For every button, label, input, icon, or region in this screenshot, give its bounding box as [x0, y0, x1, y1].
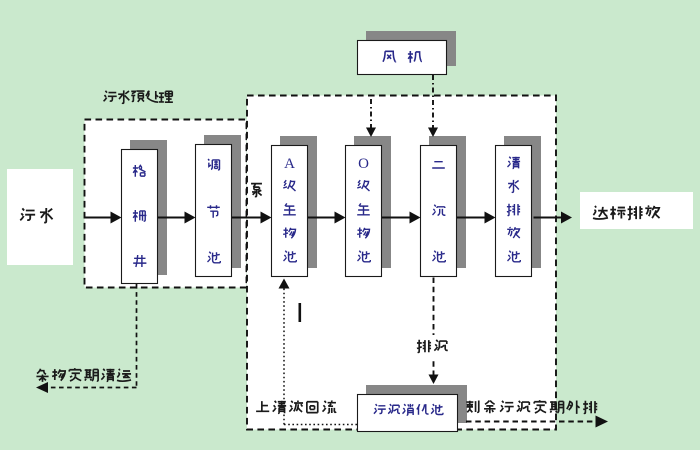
svg-text:O: O	[358, 156, 369, 172]
svg-text:A: A	[284, 156, 295, 172]
